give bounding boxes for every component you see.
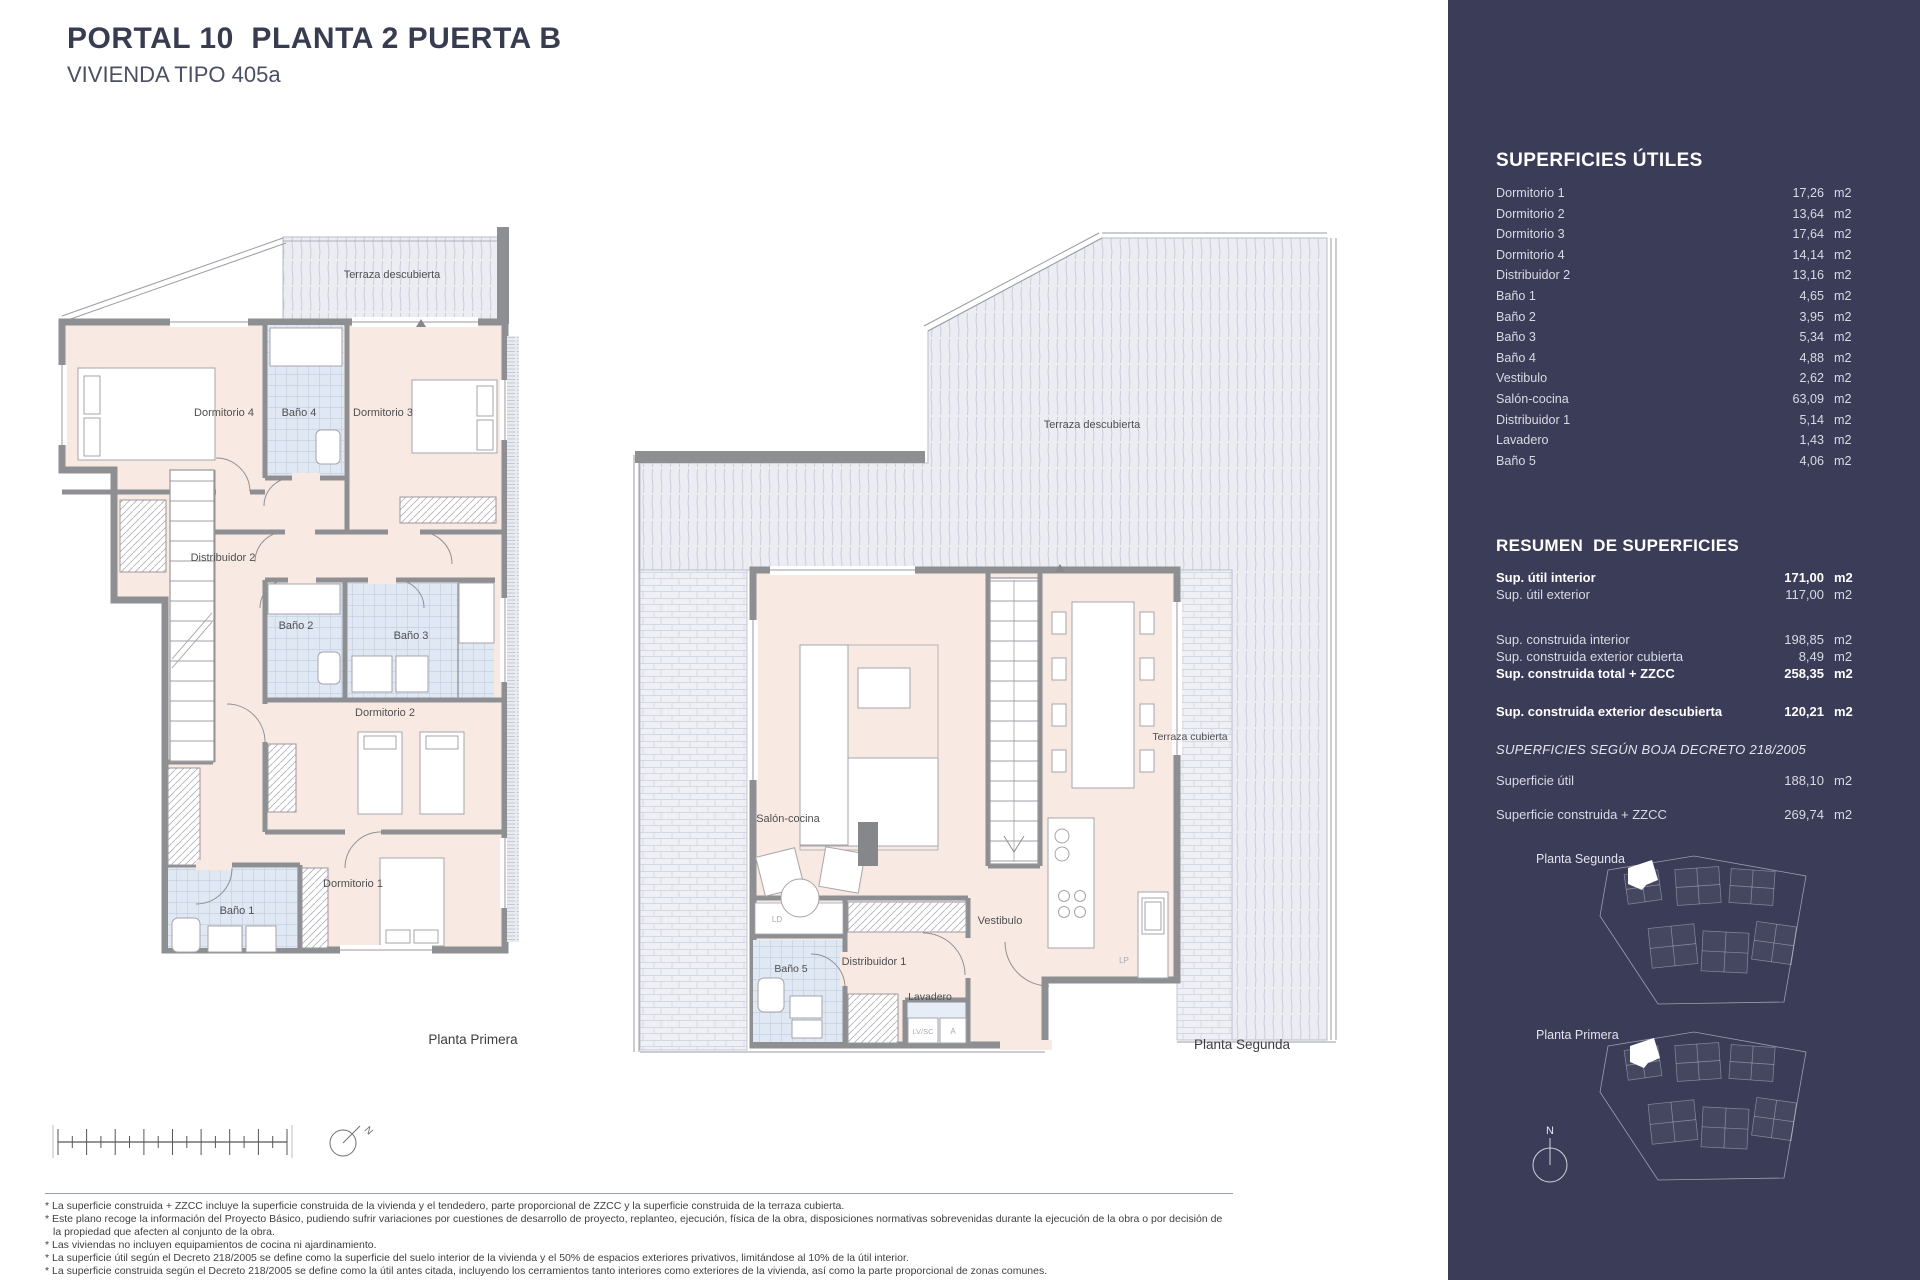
area-row: Dormitorio 317,64m2: [1496, 227, 1864, 248]
summary-row: Sup. construida total + ZZCC258,35m2: [1496, 666, 1864, 683]
closet: [168, 768, 200, 865]
header: PORTAL 10 PLANTA 2 PUERTA B VIVIENDA TIP…: [67, 22, 562, 88]
room-label: Dormitorio 4: [194, 407, 254, 419]
area-row: Dormitorio 414,14m2: [1496, 248, 1864, 269]
boja-section: SUPERFICIES SEGÚN BOJA DECRETO 218/2005 …: [1496, 742, 1864, 823]
area-unit: m2: [1834, 587, 1864, 602]
summary-label: Sup. útil exterior: [1496, 587, 1760, 602]
area-unit: m2: [1834, 392, 1864, 406]
summary-row: Sup. construida exterior descubierta120,…: [1496, 704, 1864, 721]
room-label: LV/SC: [912, 1027, 934, 1036]
room-label: Terraza descubierta: [344, 269, 441, 281]
summary-row: Superficie útil188,10m2: [1496, 773, 1864, 789]
summary-value: 8,49: [1760, 649, 1824, 664]
room-area: 14,14: [1764, 248, 1824, 262]
room-area: 63,09: [1764, 392, 1824, 406]
area-unit: m2: [1834, 207, 1864, 221]
summary-label: Sup. construida exterior descubierta: [1496, 704, 1760, 719]
area-unit: m2: [1834, 268, 1864, 282]
room-area: 4,88: [1764, 351, 1824, 365]
page-subtitle: VIVIENDA TIPO 405a: [67, 62, 562, 88]
room-area: 2,62: [1764, 371, 1824, 385]
keyplan-planta-primera: Planta Primera: [1448, 1020, 1920, 1190]
footnote: * Las viviendas no incluyen equipamiento…: [45, 1239, 1233, 1252]
plan-caption: Planta Segunda: [1194, 1037, 1291, 1052]
area-row: Baño 14,65m2: [1496, 289, 1864, 310]
summary-label: Sup. útil interior: [1496, 570, 1760, 585]
area-unit: m2: [1834, 632, 1864, 647]
room-label: LP: [1119, 956, 1129, 965]
room-label: LD: [772, 915, 782, 924]
room-name: Dormitorio 3: [1496, 227, 1764, 241]
north-compass-icon: N: [330, 1125, 375, 1156]
room-area: 3,95: [1764, 310, 1824, 324]
area-row: Distribuidor 213,16m2: [1496, 268, 1864, 289]
footnote: * La superficie construida + ZZCC incluy…: [45, 1200, 1233, 1213]
superficies-utiles-table: Dormitorio 117,26m2 Dormitorio 213,64m2 …: [1496, 186, 1864, 474]
area-unit: m2: [1834, 454, 1864, 468]
summary-row: Sup. construida interior198,85m2: [1496, 632, 1864, 649]
area-row: Dormitorio 213,64m2: [1496, 207, 1864, 228]
superficies-utiles-heading: SUPERFICIES ÚTILES: [1496, 150, 1864, 172]
area-unit: m2: [1834, 371, 1864, 385]
room-name: Dormitorio 2: [1496, 207, 1764, 221]
room-name: Distribuidor 2: [1496, 268, 1764, 282]
summary-row: Sup. construida exterior cubierta8,49m2: [1496, 649, 1864, 666]
footnotes: * La superficie construida + ZZCC incluy…: [45, 1193, 1233, 1278]
room-label: Lavadero: [908, 991, 952, 1003]
room-area: 1,43: [1764, 433, 1824, 447]
summary-label: Sup. construida total + ZZCC: [1496, 666, 1760, 681]
boja-heading: SUPERFICIES SEGÚN BOJA DECRETO 218/2005: [1496, 742, 1864, 757]
room-name: Distribuidor 1: [1496, 413, 1764, 427]
resumen-section: RESUMEN DE SUPERFICIES Sup. útil interio…: [1496, 536, 1864, 721]
summary-value: 120,21: [1760, 704, 1824, 719]
area-unit: m2: [1834, 433, 1864, 447]
resumen-heading: RESUMEN DE SUPERFICIES: [1496, 536, 1864, 556]
floorplan-planta-primera: Terraza descubierta: [57, 227, 519, 1047]
area-row: Dormitorio 117,26m2: [1496, 186, 1864, 207]
room-label: Distribuidor 2: [191, 552, 256, 564]
room-name: Baño 2: [1496, 310, 1764, 324]
room-name: Baño 3: [1496, 330, 1764, 344]
summary-row: Sup. útil interior171,00m2: [1496, 570, 1864, 587]
area-unit: m2: [1834, 704, 1864, 719]
footnote: * Este plano recoge la información del P…: [45, 1213, 1233, 1239]
room-name: Vestibulo: [1496, 371, 1764, 385]
summary-row: Sup. útil exterior117,00m2: [1496, 587, 1864, 604]
room-name: Baño 5: [1496, 454, 1764, 468]
room-area: 17,26: [1764, 186, 1824, 200]
parapet-wall: [635, 451, 925, 463]
area-row: Baño 35,34m2: [1496, 330, 1864, 351]
summary-label: Sup. construida interior: [1496, 632, 1760, 647]
room-label: Salón-cocina: [756, 813, 820, 825]
terrace-pavers-left: [640, 570, 747, 1050]
area-unit: m2: [1834, 413, 1864, 427]
area-unit: m2: [1834, 227, 1864, 241]
room-area: 17,64: [1764, 227, 1824, 241]
summary-value: 171,00: [1760, 570, 1824, 585]
superficies-utiles-section: SUPERFICIES ÚTILES Dormitorio 117,26m2 D…: [1496, 150, 1864, 474]
room-area: 13,64: [1764, 207, 1824, 221]
room-label: Distribuidor 1: [842, 956, 907, 968]
area-unit: m2: [1834, 649, 1864, 664]
summary-value: 269,74: [1760, 807, 1824, 822]
staircase: [170, 470, 214, 762]
room-area: 5,14: [1764, 413, 1824, 427]
page-title: PORTAL 10 PLANTA 2 PUERTA B: [67, 22, 562, 56]
room-label: Dormitorio 3: [353, 407, 413, 419]
area-row: Vestibulo2,62m2: [1496, 371, 1864, 392]
area-unit: m2: [1834, 310, 1864, 324]
area-unit: m2: [1834, 248, 1864, 262]
siteplan-primera: [1598, 1030, 1810, 1182]
closet: [120, 500, 166, 572]
closet: [848, 994, 898, 1043]
sidebar-north-compass-icon: N: [1520, 1118, 1580, 1198]
room-label: Dormitorio 2: [355, 707, 415, 719]
summary-label: Sup. construida exterior cubierta: [1496, 649, 1760, 664]
room-name: Dormitorio 4: [1496, 248, 1764, 262]
closet: [400, 497, 496, 523]
room-label: Terraza cubierta: [1152, 731, 1227, 743]
room-area: 4,65: [1764, 289, 1824, 303]
room-name: Lavadero: [1496, 433, 1764, 447]
area-unit: m2: [1834, 330, 1864, 344]
area-row: Baño 44,88m2: [1496, 351, 1864, 372]
area-row: Lavadero1,43m2: [1496, 433, 1864, 454]
room-name: Dormitorio 1: [1496, 186, 1764, 200]
plan-caption: Planta Primera: [428, 1032, 518, 1047]
room-area: 13,16: [1764, 268, 1824, 282]
summary-value: 198,85: [1760, 632, 1824, 647]
sidebar: SUPERFICIES ÚTILES Dormitorio 117,26m2 D…: [1448, 0, 1920, 1280]
room-label: Baño 2: [279, 620, 314, 632]
area-row: Baño 23,95m2: [1496, 310, 1864, 331]
facade-shutter-strip: [507, 336, 519, 942]
room-label: Baño 3: [394, 630, 429, 642]
page: { "header": { "title": "PORTAL 10 PLANTA…: [0, 0, 1920, 1280]
summary-row: Superficie construida + ZZCC269,74m2: [1496, 807, 1864, 823]
area-unit: m2: [1834, 186, 1864, 200]
area-unit: m2: [1834, 773, 1864, 788]
summary-label: Superficie construida + ZZCC: [1496, 807, 1760, 822]
room-name: Baño 1: [1496, 289, 1764, 303]
room-label: Terraza descubierta: [1044, 419, 1141, 431]
room-label: Dormitorio 1: [323, 878, 383, 890]
area-row: Baño 54,06m2: [1496, 454, 1864, 475]
terrace-pavers-right: [1177, 570, 1232, 1040]
room-area: 4,06: [1764, 454, 1824, 468]
north-letter: N: [362, 1125, 375, 1138]
pillar: [858, 822, 878, 866]
plot-boundary-diagonal: [62, 238, 283, 316]
area-unit: m2: [1834, 289, 1864, 303]
summary-label: Superficie útil: [1496, 773, 1760, 788]
footnote: * La superficie construida según el Decr…: [45, 1265, 1233, 1278]
area-unit: m2: [1834, 666, 1864, 681]
footnote: * La superficie útil según el Decreto 21…: [45, 1252, 1233, 1265]
area-unit: m2: [1834, 570, 1864, 585]
room-name: Salón-cocina: [1496, 392, 1764, 406]
north-letter: N: [1546, 1125, 1554, 1137]
room-label: Baño 1: [220, 905, 255, 917]
summary-value: 188,10: [1760, 773, 1824, 788]
area-unit: m2: [1834, 351, 1864, 365]
room-name: Baño 4: [1496, 351, 1764, 365]
siteplan-segunda: [1598, 854, 1810, 1006]
room-label: A: [950, 1027, 956, 1036]
closet: [268, 744, 296, 812]
area-unit: m2: [1834, 807, 1864, 822]
summary-value: 117,00: [1760, 587, 1824, 602]
scale-bar: [53, 1125, 292, 1158]
closet: [848, 902, 966, 932]
area-row: Salón-cocina63,09m2: [1496, 392, 1864, 413]
floorplan-planta-segunda: Terraza descubierta Salón-cocina Terraza…: [634, 233, 1336, 1052]
keyplan-planta-segunda: Planta Segunda: [1448, 846, 1920, 1016]
area-row: Distribuidor 15,14m2: [1496, 413, 1864, 434]
room-area: 5,34: [1764, 330, 1824, 344]
room-label: Baño 4: [282, 407, 317, 419]
room-label: Vestibulo: [978, 915, 1023, 927]
summary-value: 258,35: [1760, 666, 1824, 681]
room-label: Baño 5: [774, 963, 807, 975]
